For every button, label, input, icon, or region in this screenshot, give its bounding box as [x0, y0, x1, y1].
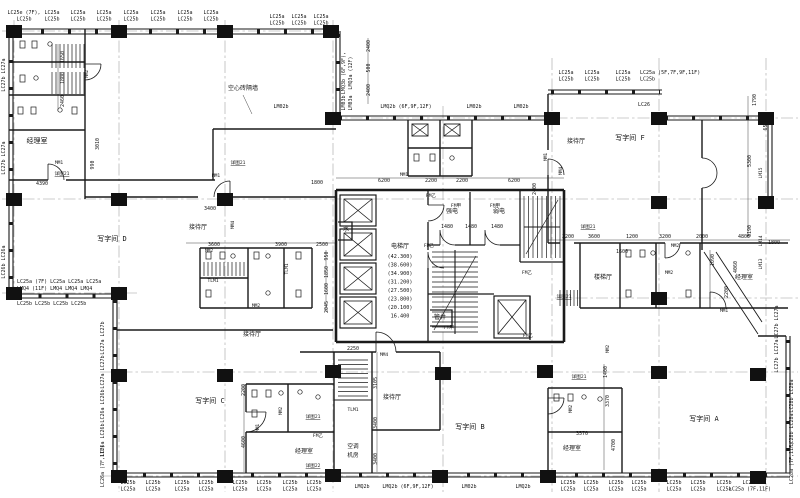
window-tag: LC25b	[584, 77, 599, 83]
window-tag: LMQ2b	[354, 484, 369, 490]
window-tag: LMQ3b (6F,9F),	[341, 52, 347, 94]
window-tag: LC25aLC25b	[150, 10, 165, 23]
dimension-label: 3600	[588, 234, 600, 240]
door-opening-tag: FM甲	[444, 325, 455, 331]
dimension-label: 1800	[311, 180, 323, 186]
dimension-label: 2500	[316, 242, 328, 248]
window-tag: LC25a	[560, 487, 575, 493]
dimension-label: 3570	[576, 431, 588, 437]
window-tag: LC27b LC27a	[774, 339, 780, 372]
dimension-label: 2200	[562, 234, 574, 240]
window-tag: LC25aLC25b	[203, 10, 218, 23]
door-opening-tag: LM14	[758, 235, 764, 246]
window-tag: LC25aLC25b	[313, 14, 328, 27]
window-tag: LC27a LC27b	[100, 355, 106, 388]
window-tag: LC25a (7F) LC25a LC25a LC25a	[17, 279, 101, 285]
window-tag: LC27b LC27a	[1, 141, 7, 174]
dimension-label: 3600	[208, 242, 220, 248]
door-opening-tag: MM2	[252, 303, 261, 309]
window-tag: LMQ3a (12F)	[348, 56, 354, 89]
window-tag: LC25a	[174, 487, 189, 493]
window-tag: LC25a	[232, 487, 247, 493]
door-opening-tag: MM2	[84, 70, 90, 79]
door-opening-tag: MM2	[605, 345, 611, 354]
dimension-label: 1480	[465, 224, 477, 230]
window-tag: LC25a	[120, 487, 135, 493]
dimension-label: 1200	[626, 234, 638, 240]
dimension-label: 1790	[752, 94, 758, 106]
elevation-value: (27.500)	[388, 288, 413, 294]
room-label: 楼梯厅	[594, 273, 612, 281]
window-tag: LC25bLC25a	[666, 480, 681, 493]
window-tag: LMQ2b (6F,9F,12F)	[380, 104, 431, 110]
dimension-label: 4800	[738, 234, 750, 240]
room-label: 接待厅	[567, 137, 585, 145]
door-opening-tag: FM乙	[313, 432, 324, 439]
door-opening-tag: MM4	[558, 167, 564, 176]
door-opening-tag: TLM1	[207, 278, 218, 284]
window-tag: LC25b	[313, 21, 328, 27]
room-label: 写字间 F	[615, 133, 644, 142]
window-tag: LC25a	[256, 487, 271, 493]
window-tag: LM02b	[461, 484, 476, 490]
window-tag: LC25bLC25a	[690, 480, 705, 493]
window-tag: LC25bLC25a	[198, 480, 213, 493]
detail-note: 详图21	[572, 373, 587, 380]
dimension-label: 1400	[603, 366, 609, 378]
dimension-label: 2200	[241, 384, 247, 396]
window-tag: LC25a	[608, 487, 623, 493]
door-opening-tag: MM2	[205, 248, 214, 254]
window-tag: LC25b	[203, 17, 218, 23]
dimension-label: 1600	[616, 249, 628, 255]
window-tag: LM03a	[348, 95, 354, 110]
dimension-label: 3400	[373, 453, 379, 465]
window-tag: LC27b LC27a	[1, 58, 7, 91]
door-opening-tag: MM1	[55, 160, 64, 166]
door-opening-tag: MM4	[380, 352, 389, 358]
window-tag: LC25aLC25b	[584, 70, 599, 83]
window-tag: LC26a (7F,11F)	[100, 445, 106, 487]
window-tag: LC25a	[690, 487, 705, 493]
door-opening-tag: FM乙	[522, 269, 533, 276]
room-label: 管井	[434, 313, 446, 321]
room-label: 写字间 A	[689, 414, 719, 423]
window-tag: LC25aLC25b	[70, 10, 85, 23]
window-tag: LC25bLC25a	[583, 480, 598, 493]
dimension-label: 6200	[508, 178, 520, 184]
window-tag: LC25a	[583, 487, 598, 493]
dimension-label: 1480	[441, 224, 453, 230]
window-tag: LC25aLC25b	[615, 70, 630, 83]
dimension-label: 2400	[366, 40, 372, 52]
door-opening-tag: MM4	[230, 221, 236, 230]
detail-note: 详图22	[306, 462, 321, 469]
window-tag: LM02b	[513, 104, 528, 110]
door-opening-tag: FM甲	[490, 203, 501, 209]
dimension-label: 4390	[36, 181, 48, 187]
room-label: 空调	[347, 442, 359, 450]
floor-plan-svg: LC25e (7F),LC25bLC25aLC25bLC25aLC25bLC25…	[0, 0, 800, 498]
window-tag: LC25b	[70, 17, 85, 23]
window-tag: LM03b	[341, 95, 347, 110]
detail-note: 详图21	[55, 170, 70, 177]
window-tag: LC25a	[145, 487, 160, 493]
room-label: 接待厅	[189, 223, 207, 231]
window-tag: LC25b	[44, 17, 59, 23]
door-opening-tag: MM1	[212, 173, 221, 179]
window-tag: LC25b	[291, 21, 306, 27]
window-tag: LC25bLC25a	[560, 480, 575, 493]
window-tag: LMQ4 (11F) LMQ4 LMQ4 LMQ4	[17, 286, 92, 292]
room-label: 写字间 D	[97, 234, 126, 243]
dimension-label: 3400	[373, 417, 379, 429]
room-label: 经理室	[563, 444, 581, 452]
window-tag: LC28b LC28a	[789, 413, 795, 446]
window-tag: LC28b LC28a	[789, 379, 795, 412]
elevation-value: (38.600)	[388, 263, 413, 269]
door-opening-tag: MM2	[671, 243, 680, 249]
room-label: 电梯厅	[391, 242, 409, 250]
dimension-label: 3105	[373, 377, 379, 389]
dimension-label: 2200	[425, 178, 437, 184]
room-label: 经理室	[295, 447, 313, 455]
detail-note: 详图21	[557, 293, 572, 300]
window-tag: LC25b	[177, 17, 192, 23]
door-opening-tag: LM15	[758, 167, 764, 178]
window-tag: LC25aLC25b	[558, 70, 573, 83]
dimension-label: 950	[324, 251, 330, 260]
room-label: 接待厅	[383, 393, 401, 401]
room-label: 写字间 B	[455, 422, 484, 431]
elevation-value: (42.300)	[388, 254, 413, 260]
window-tag: LC25bLC25a	[256, 480, 271, 493]
elevation-value: (34.900)	[388, 271, 413, 277]
window-tag: LC28a (7F,11F)	[789, 442, 795, 484]
window-tag: LC25aLC25b	[44, 10, 59, 23]
window-tag: LC27a LC27b	[100, 321, 106, 354]
door-opening-tag: MM1	[400, 172, 409, 178]
dimension-label: 990	[90, 160, 96, 169]
door-opening-tag: TLM1	[347, 407, 358, 413]
dimension-label: 1800	[60, 72, 66, 84]
door-opening-tag: MM2	[665, 270, 674, 276]
dimension-label: 500	[366, 63, 372, 72]
window-tag: LC25b	[123, 17, 138, 23]
window-tag: LC25b	[150, 17, 165, 23]
dimension-label: 2200	[724, 286, 730, 298]
door-opening-tag: LM13	[758, 258, 764, 269]
dimension-label: 4060	[733, 261, 739, 273]
door-opening-tag: MM1	[543, 153, 549, 162]
window-tag: LMQ2b (6F,9F,12F)	[382, 484, 433, 490]
dimension-label: 3010	[95, 138, 101, 150]
dimension-label: 1600	[324, 283, 330, 295]
window-tag: LC25bLC25a	[174, 480, 189, 493]
detail-note: 详图21	[306, 413, 321, 420]
dimension-label: 1090	[710, 254, 716, 266]
window-tag: LMQ2b	[515, 484, 530, 490]
window-tag: LC25b LC25b LC25b LC25b	[17, 301, 86, 307]
window-tag: LC25a	[198, 487, 213, 493]
door-opening-tag: FM乙	[424, 242, 435, 249]
window-tag: LC25a	[666, 487, 681, 493]
window-tag: LC25aLC25b	[291, 14, 306, 27]
door-opening-tag: FM乙	[426, 192, 437, 199]
room-label: 机房	[347, 451, 359, 459]
window-tag: LC25b	[640, 77, 655, 83]
window-tag: LC25b	[16, 17, 31, 23]
window-tag: LC25bLC25a	[608, 480, 623, 493]
room-label: 水	[343, 225, 349, 233]
elevation-value: 16.400	[391, 314, 410, 320]
detail-note: 详图21	[231, 159, 246, 166]
dimension-label: 3400	[204, 206, 216, 212]
dimension-label: 1650	[60, 51, 66, 63]
window-tag: LC25aLC25b	[123, 10, 138, 23]
window-tag: LC25bLC25a	[120, 480, 135, 493]
window-tag: LC26b LC26a	[1, 245, 7, 278]
window-tag: LC26a LC26b	[100, 389, 106, 422]
window-tag: LC25a	[631, 487, 646, 493]
room-label: 经理室	[27, 136, 48, 145]
window-tag: LC27b LC27a	[774, 305, 780, 338]
dimension-label: 4600	[241, 436, 247, 448]
window-tag: LC25bLC25a	[631, 480, 646, 493]
door-opening-tag: MM1	[720, 308, 729, 314]
drawing-canvas: LC25e (7F),LC25bLC25aLC25bLC25aLC25bLC25…	[0, 0, 800, 498]
dimension-label: 1800	[768, 240, 780, 246]
elevation-value: (20.100)	[388, 305, 413, 311]
window-tag: LC25a (7F,11F)	[729, 487, 771, 493]
dimension-label: 5300	[747, 155, 753, 167]
room-label: 写字间 C	[195, 396, 224, 405]
window-tag: LC25bLC25a	[232, 480, 247, 493]
dimension-label: 2460	[60, 95, 66, 107]
window-tag: LC25a	[306, 487, 321, 493]
window-tag: LC25bLC25a	[306, 480, 321, 493]
dimension-label: 3370	[605, 395, 611, 407]
window-tag: LC25aLC25b	[96, 10, 111, 23]
window-tag: LC25b	[615, 77, 630, 83]
dimension-label: 2200	[456, 178, 468, 184]
window-tag: LC25aLC25b	[177, 10, 192, 23]
window-tag: LC26	[638, 102, 650, 108]
room-label: 经理室	[735, 273, 753, 281]
window-tag: LC25b	[269, 21, 284, 27]
window-tag: LC25a	[282, 487, 297, 493]
window-tag: LC25bLC25a	[282, 480, 297, 493]
dimension-label: 4700	[611, 439, 617, 451]
dimension-label: 1480	[491, 224, 503, 230]
room-label: 空心砖隔墙	[228, 84, 258, 92]
dimension-label: 6200	[378, 178, 390, 184]
door-opening-tag: MM1	[255, 424, 261, 433]
window-tag: LC25b	[558, 77, 573, 83]
door-opening-tag: MM2	[568, 405, 574, 414]
window-tag: LC25bLC25a	[145, 480, 160, 493]
window-tag: LC25aLC25b	[269, 14, 284, 27]
dimension-label: 650	[763, 121, 769, 130]
elevation-value: (31.200)	[388, 280, 413, 286]
window-tag: LM02b	[273, 104, 288, 110]
dimension-label: 2250	[347, 346, 359, 352]
door-opening-tag: FM甲	[451, 203, 462, 209]
dimension-label: 2045	[324, 301, 330, 313]
door-opening-tag: TLM1	[284, 263, 290, 274]
door-opening-tag: FM乙	[523, 332, 534, 339]
dimension-label: 2400	[532, 183, 538, 195]
detail-note: 详图21	[581, 223, 596, 230]
dimension-label: 1850	[324, 266, 330, 278]
dimension-label: 3200	[659, 234, 671, 240]
room-label: 接待厅	[243, 330, 261, 338]
door-opening-tag: MM2	[278, 407, 284, 416]
window-tag: LM02b	[466, 104, 481, 110]
dimension-label: 2400	[366, 84, 372, 96]
window-tag: LC25b	[96, 17, 111, 23]
dimension-label: 2000	[696, 234, 708, 240]
dimension-label: 3900	[275, 242, 287, 248]
elevation-value: (23.800)	[388, 297, 413, 303]
